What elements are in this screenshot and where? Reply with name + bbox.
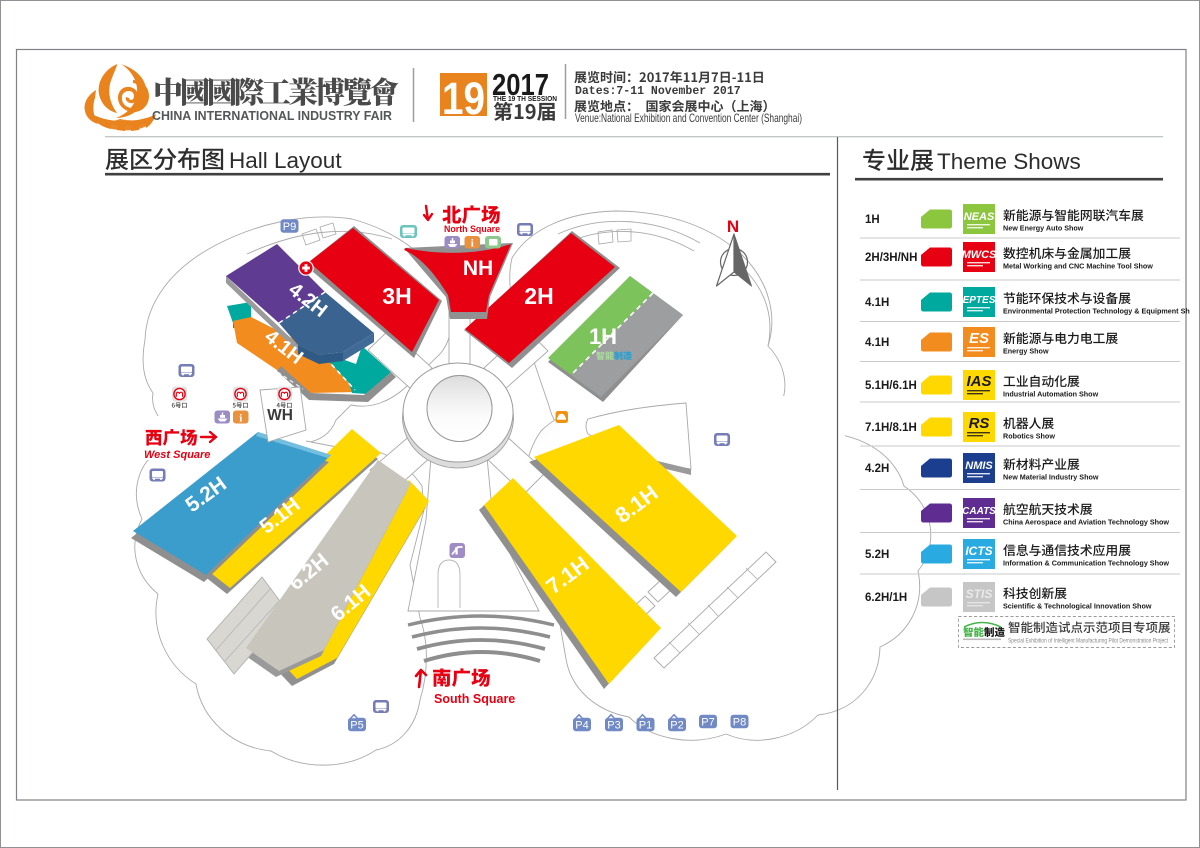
svg-text:P4: P4 xyxy=(575,720,588,732)
svg-text:4.1H: 4.1H xyxy=(865,337,889,349)
svg-text:IAS: IAS xyxy=(966,373,991,390)
svg-text:Dates:7-11 November 2017: Dates:7-11 November 2017 xyxy=(575,85,741,98)
svg-text:MWCS: MWCS xyxy=(962,249,997,261)
svg-text:19: 19 xyxy=(442,73,485,124)
svg-text:Information & Communication Te: Information & Communication Technology S… xyxy=(1003,559,1169,568)
svg-text:EPTES: EPTES xyxy=(963,295,996,306)
svg-text:New Material Industry Show: New Material Industry Show xyxy=(1003,473,1099,482)
svg-text:N: N xyxy=(727,217,739,236)
svg-text:WH: WH xyxy=(267,407,293,424)
svg-text:i: i xyxy=(239,413,242,425)
svg-text:Scientific & Technological Inn: Scientific & Technological Innovation Sh… xyxy=(1003,602,1152,611)
svg-text:South Square: South Square xyxy=(434,692,515,706)
svg-text:P7: P7 xyxy=(701,717,714,729)
svg-text:P3: P3 xyxy=(607,720,620,732)
svg-text:CAATS: CAATS xyxy=(962,506,996,517)
svg-text:China Aerospace and Aviation T: China Aerospace and Aviation Technology … xyxy=(1003,518,1169,527)
svg-text:West Square: West Square xyxy=(144,449,210,461)
svg-text:5.2H: 5.2H xyxy=(865,549,889,561)
svg-text:4.2H: 4.2H xyxy=(865,463,889,475)
svg-text:P9: P9 xyxy=(283,221,296,233)
svg-text:Environmental Protection Techn: Environmental Protection Technology & Eq… xyxy=(1003,307,1190,316)
svg-text:New Energy Auto Show: New Energy Auto Show xyxy=(1003,224,1084,233)
svg-text:ES: ES xyxy=(969,330,989,347)
svg-text:2H: 2H xyxy=(524,283,553,309)
svg-text:1H: 1H xyxy=(589,324,617,349)
svg-text:CHINA INTERNATIONAL INDUSTRY F: CHINA INTERNATIONAL INDUSTRY FAIR xyxy=(152,109,392,123)
svg-text:Theme Shows: Theme Shows xyxy=(937,149,1081,174)
svg-text:Robotics Show: Robotics Show xyxy=(1003,432,1055,441)
svg-text:Metal Working and CNC Machine: Metal Working and CNC Machine Tool Show xyxy=(1003,262,1153,271)
svg-text:THE 19 TH SESSION: THE 19 TH SESSION xyxy=(493,94,557,103)
svg-text:P2: P2 xyxy=(670,720,683,732)
svg-text:NEAS: NEAS xyxy=(964,211,995,223)
svg-text:NMIS: NMIS xyxy=(965,460,993,472)
svg-text:P1: P1 xyxy=(639,720,652,732)
svg-text:NH: NH xyxy=(463,257,493,280)
svg-text:North Square: North Square xyxy=(444,224,500,235)
svg-text:7.1H/8.1H: 7.1H/8.1H xyxy=(865,422,917,434)
svg-text:i: i xyxy=(471,238,474,250)
svg-text:1H: 1H xyxy=(865,214,880,226)
svg-text:STIS: STIS xyxy=(966,587,993,601)
svg-text:2H/3H/NH: 2H/3H/NH xyxy=(865,252,917,264)
svg-text:3H: 3H xyxy=(382,283,411,309)
svg-text:4.1H: 4.1H xyxy=(865,297,889,309)
svg-text:Industrial Automation Show: Industrial Automation Show xyxy=(1003,390,1099,399)
svg-text:P5: P5 xyxy=(350,720,363,732)
svg-text:Venue:National Exhibition and: Venue:National Exhibition and Convention… xyxy=(575,111,802,125)
svg-text:Hall Layout: Hall Layout xyxy=(229,148,342,173)
svg-text:6.2H/1H: 6.2H/1H xyxy=(865,592,907,604)
svg-text:RS: RS xyxy=(969,415,990,432)
svg-text:P8: P8 xyxy=(733,717,746,729)
svg-text:5.1H/6.1H: 5.1H/6.1H xyxy=(865,380,917,392)
svg-text:Special Exhibition of Intelli: Special Exhibition of Intelligent Manufa… xyxy=(1008,638,1168,645)
svg-text:Energy Show: Energy Show xyxy=(1003,347,1049,356)
svg-text:ICTS: ICTS xyxy=(965,544,992,558)
